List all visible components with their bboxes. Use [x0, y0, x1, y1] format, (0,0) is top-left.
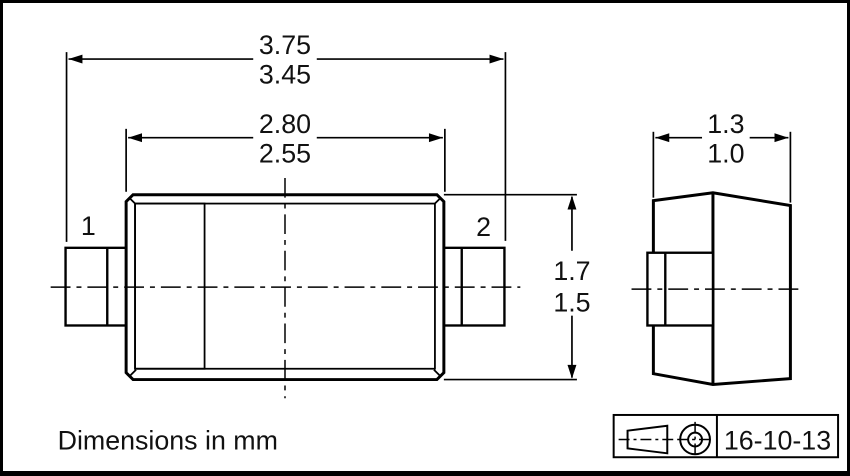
bevel-line-bottom-left	[129, 370, 136, 377]
arrowhead-right	[429, 133, 443, 142]
arrowhead-left	[69, 55, 83, 64]
arrowhead-down	[567, 365, 576, 379]
projection-target-icon	[677, 422, 713, 457]
dim-body-length-max: 2.80	[259, 109, 311, 139]
dim-body-height-min: 1.5	[553, 288, 590, 318]
drawing-date: 16-10-13	[724, 425, 831, 455]
arrowhead-right	[775, 133, 789, 142]
dim-body-width-max: 1.3	[707, 109, 744, 139]
arrowhead-up	[567, 196, 576, 210]
arrowhead-right	[490, 55, 504, 64]
dim-overall-length-min: 3.45	[259, 60, 311, 90]
cathode-band	[135, 204, 205, 369]
dim-body-length-min: 2.55	[259, 138, 311, 168]
arrowhead-left	[128, 133, 142, 142]
pin1-label: 1	[81, 211, 96, 241]
dim-body-width-min: 1.0	[707, 138, 744, 168]
units-note: Dimensions in mm	[58, 425, 278, 455]
title-block: 16-10-13	[614, 415, 838, 457]
dim-body-width: 1.3 1.0	[653, 109, 790, 203]
package-outline-drawing: 1 2 3.75 3.45 2.80 2.55	[3, 3, 847, 471]
bevel-line-top-right	[434, 198, 441, 205]
bevel-line-bottom-right	[434, 370, 441, 377]
arrowhead-left	[655, 133, 669, 142]
projection-cone-icon	[619, 426, 676, 454]
drawing-frame: 1 2 3.75 3.45 2.80 2.55	[0, 0, 850, 476]
pin2-label: 2	[476, 212, 491, 242]
dim-overall-length-max: 3.75	[259, 30, 311, 60]
dim-body-height-max: 1.7	[553, 256, 590, 286]
